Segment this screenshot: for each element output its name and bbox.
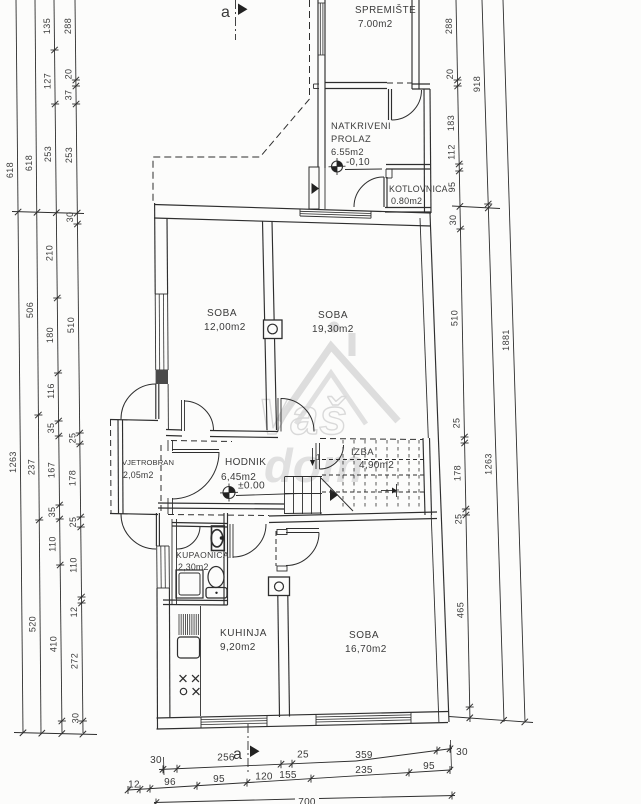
svg-text:30: 30 [70,713,80,724]
svg-text:918: 918 [472,76,482,92]
svg-text:30: 30 [448,215,458,226]
svg-text:20: 20 [445,69,455,80]
svg-text:465: 465 [455,602,465,618]
svg-text:16,70m2: 16,70m2 [345,644,387,655]
svg-text:96: 96 [164,777,176,788]
svg-text:178: 178 [453,465,463,481]
svg-text:359: 359 [355,750,373,761]
svg-text:Vaš: Vaš [258,389,348,445]
svg-text:235: 235 [355,765,373,776]
svg-text:1: 1 [316,453,321,462]
svg-text:253: 253 [64,147,74,163]
svg-text:155: 155 [279,770,297,781]
svg-text:510: 510 [66,317,76,333]
svg-text:272: 272 [70,653,80,669]
svg-text:HODNIK: HODNIK [225,457,266,468]
svg-text:SOBA: SOBA [349,630,379,641]
svg-text:KUHINJA: KUHINJA [220,628,267,639]
svg-text:288: 288 [444,18,454,34]
svg-text:110: 110 [47,536,57,552]
svg-text:-0,10: -0,10 [346,157,370,168]
svg-text:25: 25 [454,514,464,525]
svg-text:35: 35 [47,507,57,518]
svg-text:127: 127 [42,73,52,89]
svg-text:112: 112 [446,144,456,160]
svg-text:0.80m2: 0.80m2 [391,196,422,206]
svg-text:253: 253 [43,146,53,162]
svg-text:SOBA: SOBA [318,310,348,321]
svg-text:618: 618 [5,162,15,178]
svg-text:30: 30 [150,755,162,766]
svg-text:25: 25 [68,517,78,528]
svg-text:PROLAZ: PROLAZ [331,134,371,144]
svg-text:±0.00: ±0.00 [238,481,265,492]
svg-text:95: 95 [213,774,225,785]
svg-text:9,20m2: 9,20m2 [220,642,256,653]
svg-text:IZBA: IZBA [351,447,374,458]
svg-text:167: 167 [47,462,57,478]
svg-text:410: 410 [49,636,59,652]
svg-text:19,30m2: 19,30m2 [312,324,354,335]
svg-text:6.55m2: 6.55m2 [331,147,364,157]
svg-text:25: 25 [452,418,462,429]
svg-text:KOTLOVNICA: KOTLOVNICA [389,184,448,194]
svg-text:700: 700 [298,797,316,804]
svg-text:25: 25 [67,433,77,444]
svg-text:KUPAONICA: KUPAONICA [176,550,229,560]
svg-text:NATKRIVENI: NATKRIVENI [331,121,391,131]
svg-text:SOBA: SOBA [207,308,237,319]
svg-text:VJETROBRAN: VJETROBRAN [122,458,174,467]
svg-text:2,30m2: 2,30m2 [178,562,209,572]
svg-text:35: 35 [46,423,56,434]
svg-text:618: 618 [24,155,34,171]
svg-text:178: 178 [68,470,78,486]
svg-text:12: 12 [128,779,140,790]
svg-text:180: 180 [45,327,55,343]
svg-text:37: 37 [64,90,74,101]
svg-text:135: 135 [42,18,52,34]
svg-text:110: 110 [69,557,79,573]
svg-text:116: 116 [46,383,56,399]
svg-text:a: a [233,746,242,763]
svg-text:12,00m2: 12,00m2 [204,322,246,333]
svg-text:a: a [221,4,230,21]
svg-text:95: 95 [447,182,457,193]
svg-text:237: 237 [26,459,36,475]
svg-text:120: 120 [255,771,273,782]
svg-text:1881: 1881 [501,329,511,351]
svg-text:12: 12 [69,607,79,618]
svg-text:183: 183 [446,115,456,131]
svg-text:dom: dom [264,439,363,492]
svg-text:7.00m2: 7.00m2 [358,19,392,30]
svg-text:95: 95 [423,761,435,772]
svg-text:2,05m2: 2,05m2 [123,470,154,480]
svg-text:1263: 1263 [8,451,18,473]
svg-text:4,90m2: 4,90m2 [359,460,394,471]
svg-text:25: 25 [297,750,309,761]
svg-text:20: 20 [63,69,73,80]
svg-text:510: 510 [450,310,460,326]
svg-text:SPREMIŠTE: SPREMIŠTE [355,5,416,16]
svg-text:288: 288 [63,18,73,34]
svg-text:506: 506 [25,302,35,318]
svg-text:520: 520 [28,616,38,632]
svg-text:30: 30 [456,747,468,758]
svg-text:1263: 1263 [484,453,494,475]
svg-text:210: 210 [44,245,54,261]
